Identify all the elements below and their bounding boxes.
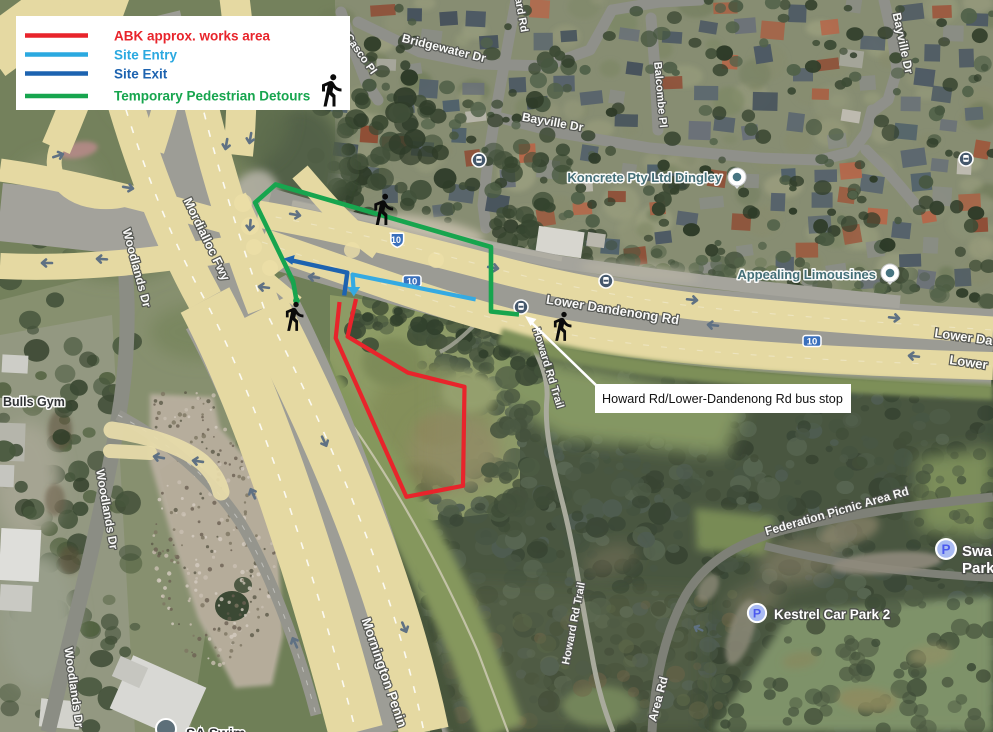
svg-text:Howard Rd/Lower-Dandenong Rd b: Howard Rd/Lower-Dandenong Rd bus stop <box>602 392 843 406</box>
svg-text:Bulls Gym: Bulls Gym <box>3 395 65 409</box>
svg-text:Kestrel Car Park 2: Kestrel Car Park 2 <box>774 607 890 622</box>
svg-text:Park: Park <box>962 560 993 577</box>
svg-text:Site Entry: Site Entry <box>114 48 178 63</box>
svg-text:10: 10 <box>807 337 818 348</box>
svg-text:P: P <box>753 606 761 620</box>
svg-text:Swal: Swal <box>962 543 993 560</box>
svg-text:Temporary Pedestrian Detours: Temporary Pedestrian Detours <box>114 89 310 104</box>
svg-text:ABK approx. works area: ABK approx. works area <box>114 29 271 44</box>
svg-text:Appealing Limousines: Appealing Limousines <box>737 267 876 282</box>
svg-text:Site Exit: Site Exit <box>114 67 168 82</box>
svg-text:Koncrete Pty Ltd Dingley: Koncrete Pty Ltd Dingley <box>567 170 722 185</box>
svg-text:10: 10 <box>391 235 401 245</box>
svg-text:P: P <box>941 542 950 557</box>
svg-text:SA Swim: SA Swim <box>186 725 245 732</box>
